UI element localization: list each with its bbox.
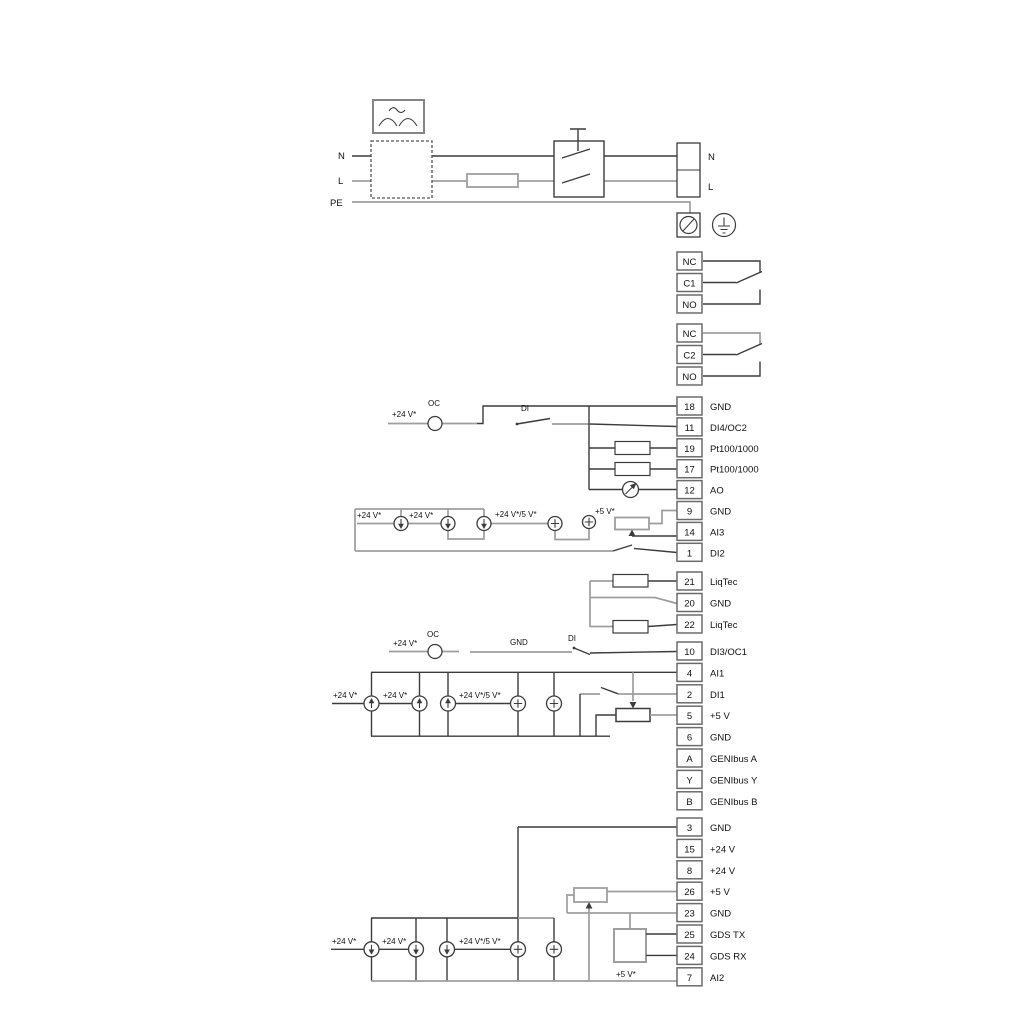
- terminal-label: GND: [710, 599, 731, 610]
- liqtec-sensor-2-icon: [613, 621, 648, 634]
- terminal-number: 22: [684, 620, 695, 631]
- relay1-nc-wire: [703, 261, 760, 273]
- terminal-label: AI3: [710, 527, 724, 538]
- ai2-pot-icon: [574, 888, 607, 902]
- gds-tx-rx-wires: [646, 934, 677, 955]
- earth-icon-bars: [718, 218, 730, 234]
- label-oc-di4: OC: [428, 399, 440, 408]
- main-switch-box: [554, 141, 604, 197]
- terminal-number: 20: [684, 599, 695, 610]
- terminal-number: 5: [687, 711, 692, 722]
- switch-actuator-icon: [570, 129, 586, 151]
- terminal-number: 19: [684, 444, 695, 455]
- terminal-label: DI4/OC2: [710, 423, 747, 434]
- relay1-blade-icon: [736, 272, 762, 284]
- pt100-1-icon: [615, 442, 650, 455]
- terminal-label: DI1: [710, 690, 725, 701]
- label-l-right: L: [708, 182, 713, 193]
- ai3-pot-to-gnd: [649, 511, 677, 524]
- ac-filter-box: [373, 100, 424, 133]
- gds-module-box: [614, 929, 646, 962]
- label-oc-di3: OC: [427, 630, 439, 639]
- label-plus24-ai3-2: +24 V*: [409, 511, 433, 520]
- liqtec2-wire-b: [648, 625, 677, 627]
- liqtec-gnd-wire: [590, 598, 677, 604]
- di2-wire-b: [634, 549, 677, 553]
- di2-blade-icon: [613, 545, 632, 551]
- relay1-no-wire: [703, 290, 760, 305]
- terminal-label: Pt100/1000: [710, 465, 759, 476]
- liqtec-sensor-1-icon: [613, 575, 648, 588]
- terminal-number: NC: [683, 257, 697, 268]
- label-plus5-ai3: +5 V*: [595, 507, 615, 516]
- ai3-pot-wiper-arrow: [629, 530, 636, 537]
- terminal-label: LiqTec: [710, 620, 738, 631]
- ai1-pot-icon: [616, 709, 650, 722]
- wiring-diagram: N L PE N L: [0, 0, 1024, 1024]
- label-di-di4: DI: [521, 404, 529, 413]
- terminal-label: GND: [710, 823, 731, 834]
- terminal-label: DI2: [710, 548, 725, 559]
- pt100-2-icon: [615, 463, 650, 476]
- terminal-label: LiqTec: [710, 577, 738, 588]
- switch-blade-n-icon: [562, 149, 590, 158]
- label-plus24-ai2-2: +24 V*: [382, 937, 406, 946]
- open-collector-icon: [428, 645, 442, 659]
- terminal-number: 21: [684, 577, 695, 588]
- terminal-label: +24 V: [710, 844, 736, 855]
- terminal-number: 18: [684, 402, 695, 413]
- label-plus24or5-ai3: +24 V*/5 V*: [495, 510, 537, 519]
- label-plus24-ai1-2: +24 V*: [383, 691, 407, 700]
- label-plus24-di4: +24 V*: [392, 410, 416, 419]
- terminal-number: 1: [687, 548, 692, 559]
- di3-wire-b: [590, 652, 677, 654]
- terminal-number: NO: [682, 372, 696, 383]
- terminal-number: 26: [684, 887, 695, 898]
- terminal-label: +5 V: [710, 711, 730, 722]
- source-symbols: [364, 417, 596, 957]
- label-n-right: N: [708, 152, 715, 163]
- terminal-label: GND: [710, 733, 731, 744]
- terminal-label: GND: [710, 507, 731, 518]
- di1-blade-icon: [601, 688, 618, 694]
- terminal-label: GENIbus A: [710, 754, 758, 765]
- terminal-number: 2: [687, 690, 692, 701]
- terminal-number: 7: [687, 973, 692, 984]
- label-plus24-di3: +24 V*: [393, 639, 417, 648]
- switch-blade-l-icon: [562, 174, 590, 183]
- ai3-pot-icon: [615, 518, 649, 530]
- relay2-nc-wire: [703, 333, 760, 345]
- label-plus24or5-ai1: +24 V*/5 V*: [459, 691, 501, 700]
- terminal-label: AI1: [710, 668, 724, 679]
- terminal-label: GENIbus B: [710, 797, 758, 808]
- di4-blade-icon: [517, 419, 550, 425]
- terminal-label: GDS RX: [710, 951, 747, 962]
- diagram-svg: N L PE N L: [0, 0, 1024, 1024]
- terminal-label: Pt100/1000: [710, 444, 759, 455]
- terminal-label: +24 V: [710, 866, 736, 877]
- terminal-label: GENIbus Y: [710, 775, 758, 786]
- terminal-number: 11: [685, 423, 695, 434]
- label-plus5-gds: +5 V*: [616, 970, 636, 979]
- fuse-icon: [467, 174, 518, 187]
- relay-2-wiring: [703, 333, 762, 376]
- terminal-number: 10: [684, 647, 695, 658]
- label-pe-left: PE: [330, 198, 343, 209]
- label-l-left: L: [338, 176, 343, 187]
- di4-section: +24 V* OC DI: [388, 399, 677, 498]
- terminal-number: 25: [684, 930, 695, 941]
- terminal-number: A: [686, 754, 693, 765]
- label-gnd-di3: GND: [510, 638, 528, 647]
- relay2-blade-icon: [736, 344, 762, 356]
- di3-blade-icon: [574, 648, 590, 655]
- terminal-number: NC: [683, 329, 697, 340]
- terminal-number: 23: [684, 909, 695, 920]
- power-section: N L PE N L: [330, 100, 736, 237]
- open-collector-icon: [428, 417, 442, 431]
- terminal-number: 15: [684, 844, 695, 855]
- terminal-strips: NCC1NONCC2NO18GND11DI4/OC219Pt100/100017…: [677, 252, 759, 986]
- relay2-no-wire: [703, 362, 760, 377]
- ai1-pot-to-gnd: [596, 715, 616, 736]
- liqtec-section: [590, 575, 677, 634]
- terminal-label: +5 V: [710, 887, 730, 898]
- terminal-label: GND: [710, 909, 731, 920]
- terminal-number: C2: [683, 351, 695, 362]
- supply-dashed-box: [371, 141, 432, 198]
- rail-18: [477, 406, 677, 424]
- terminal-number: 9: [687, 507, 692, 518]
- label-plus24-ai2-1: +24 V*: [332, 937, 356, 946]
- terminal-number: 17: [684, 465, 695, 476]
- terminal-label: AI2: [710, 973, 724, 984]
- terminal-number: 12: [684, 486, 695, 497]
- relay-1-wiring: [703, 261, 762, 304]
- terminal-number: C1: [683, 279, 695, 290]
- terminal-number: 24: [684, 951, 695, 962]
- terminal-number: 4: [687, 668, 692, 679]
- terminal-label: AO: [710, 486, 724, 497]
- label-plus24-ai3-1: +24 V*: [357, 511, 381, 520]
- label-plus24or5-ai2: +24 V*/5 V*: [459, 937, 501, 946]
- ai1-section: +24 V* +24 V* +24 V*/5 V*: [332, 672, 677, 736]
- ai2-section: +24 V* +24 V* +24 V*/5 V* +5 V*: [331, 827, 677, 981]
- terminal-number: 14: [684, 527, 695, 538]
- ai3-u-brackets: [448, 529, 589, 540]
- terminal-number: NO: [682, 300, 696, 311]
- terminal-number: 3: [687, 823, 692, 834]
- wire-pe: [352, 202, 690, 213]
- terminal-label: GDS TX: [710, 930, 746, 941]
- ai1-pot-wiper-arrow: [630, 702, 637, 709]
- label-plus24-ai1-1: +24 V*: [333, 691, 357, 700]
- terminal-label: GND: [710, 402, 731, 413]
- terminal-label: DI3/OC1: [710, 647, 747, 658]
- ai2-pot-wiper-arrow: [586, 902, 593, 909]
- label-di-di3: DI: [568, 634, 576, 643]
- terminal-number: Y: [686, 775, 693, 786]
- di4-wire-b: [590, 424, 677, 427]
- terminal-number: B: [686, 797, 692, 808]
- terminal-number: 8: [687, 866, 692, 877]
- label-n-left: N: [338, 151, 345, 162]
- terminal-number: 6: [687, 733, 692, 744]
- ai1-verticals: [372, 672, 555, 736]
